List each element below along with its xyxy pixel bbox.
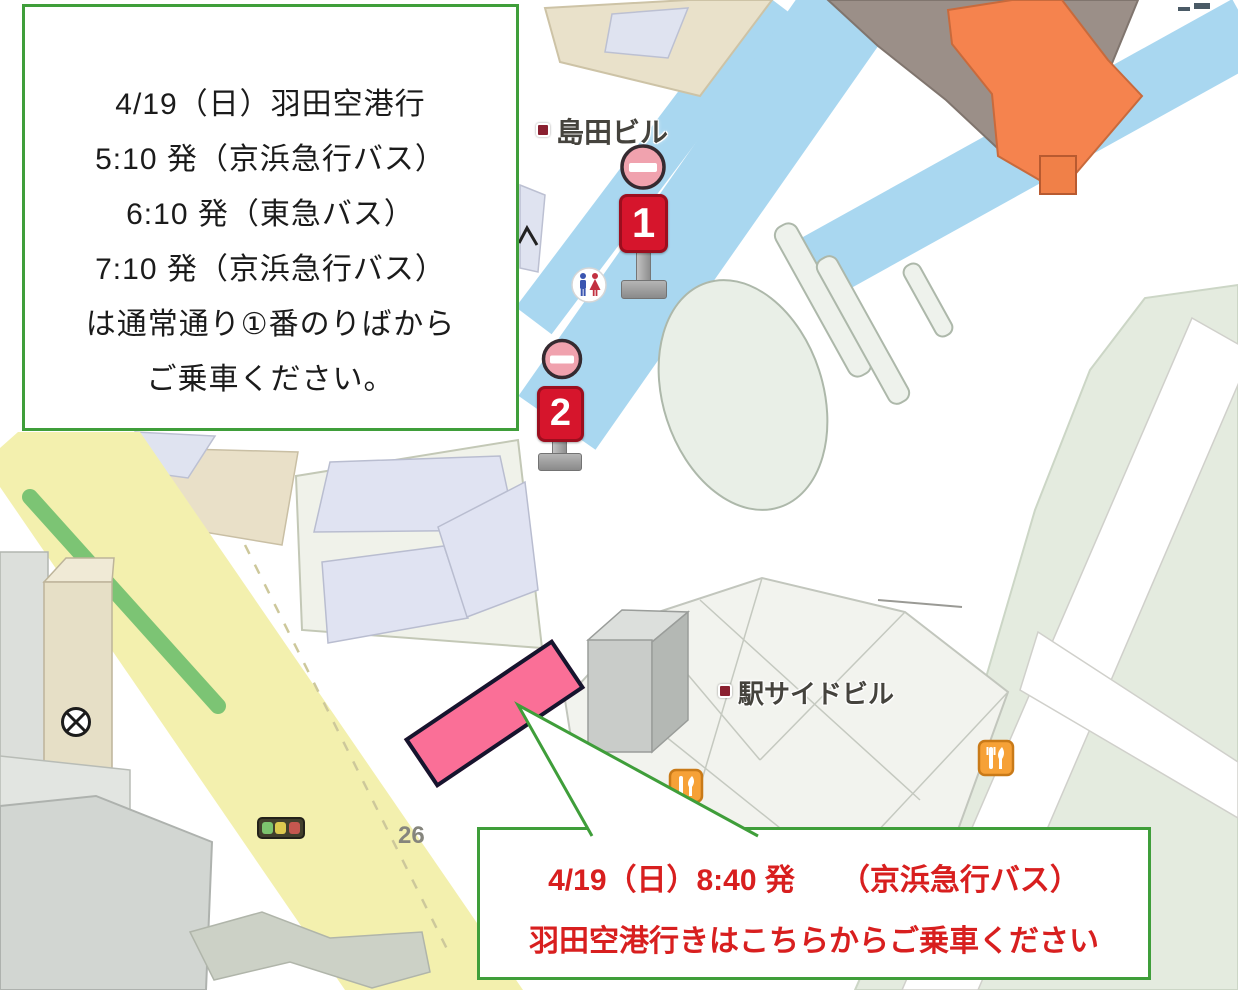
- bus-stop-2-sign: 2: [537, 386, 584, 442]
- haneda-bus-stop-notice: 島田ビル 駅サイドビル 1 2: [0, 0, 1238, 990]
- restaurant-icon: [977, 739, 1015, 777]
- tall-building-front: [588, 640, 652, 752]
- no-entry-icon: [540, 337, 584, 381]
- traffic-light-green: [262, 822, 273, 834]
- barrier-icon: [59, 705, 93, 739]
- bus-stop-1-sign: 1: [619, 194, 668, 253]
- traffic-light-icon: [257, 817, 305, 839]
- notice-line: 6:10 発（東急バス）: [25, 187, 516, 242]
- no-entry-icon: [618, 142, 668, 192]
- building-edge-lavender: [520, 185, 545, 272]
- ekiside-building-label: 駅サイドビル: [738, 674, 894, 711]
- traffic-light-red: [289, 822, 300, 834]
- restroom-icon: [570, 266, 608, 304]
- notice-line: 7:10 発（京浜急行バス）: [25, 242, 516, 297]
- curb-line: [878, 600, 962, 607]
- notice-box-special-departure: 4/19（日）8:40 発 （京浜急行バス） 羽田空港行きはこちらからご乗車くだ…: [477, 827, 1151, 980]
- bus-shelter-3: [901, 261, 956, 340]
- notice-line: は通常通り①番のりばから: [25, 297, 516, 352]
- notice-line: 4/19（日）羽田空港行: [25, 77, 516, 132]
- notice-line: 4/19（日）8:40 発 （京浜急行バス）: [480, 855, 1148, 899]
- bus-stop-2-base: [538, 453, 582, 471]
- small-map-glyph: [1178, 3, 1210, 11]
- building-southwest-gray: [0, 796, 212, 990]
- ekiside-building-marker: [718, 684, 732, 698]
- notice-box-regular-stops: 4/19（日）羽田空港行 5:10 発（京浜急行バス） 6:10 発（東急バス）…: [22, 4, 519, 431]
- notice-line: 羽田空港行きはこちらからご乗車ください: [480, 916, 1148, 960]
- restaurant-icon: [668, 768, 704, 804]
- notice-line: ご乗車ください。: [25, 352, 516, 407]
- bus-stop-1-base: [621, 280, 667, 299]
- traffic-light-yellow: [275, 822, 286, 834]
- shimada-building-marker: [536, 123, 550, 137]
- road-number-label: 26: [398, 822, 425, 850]
- building-orange-annex: [1040, 156, 1076, 194]
- notice-line: 5:10 発（京浜急行バス）: [25, 132, 516, 187]
